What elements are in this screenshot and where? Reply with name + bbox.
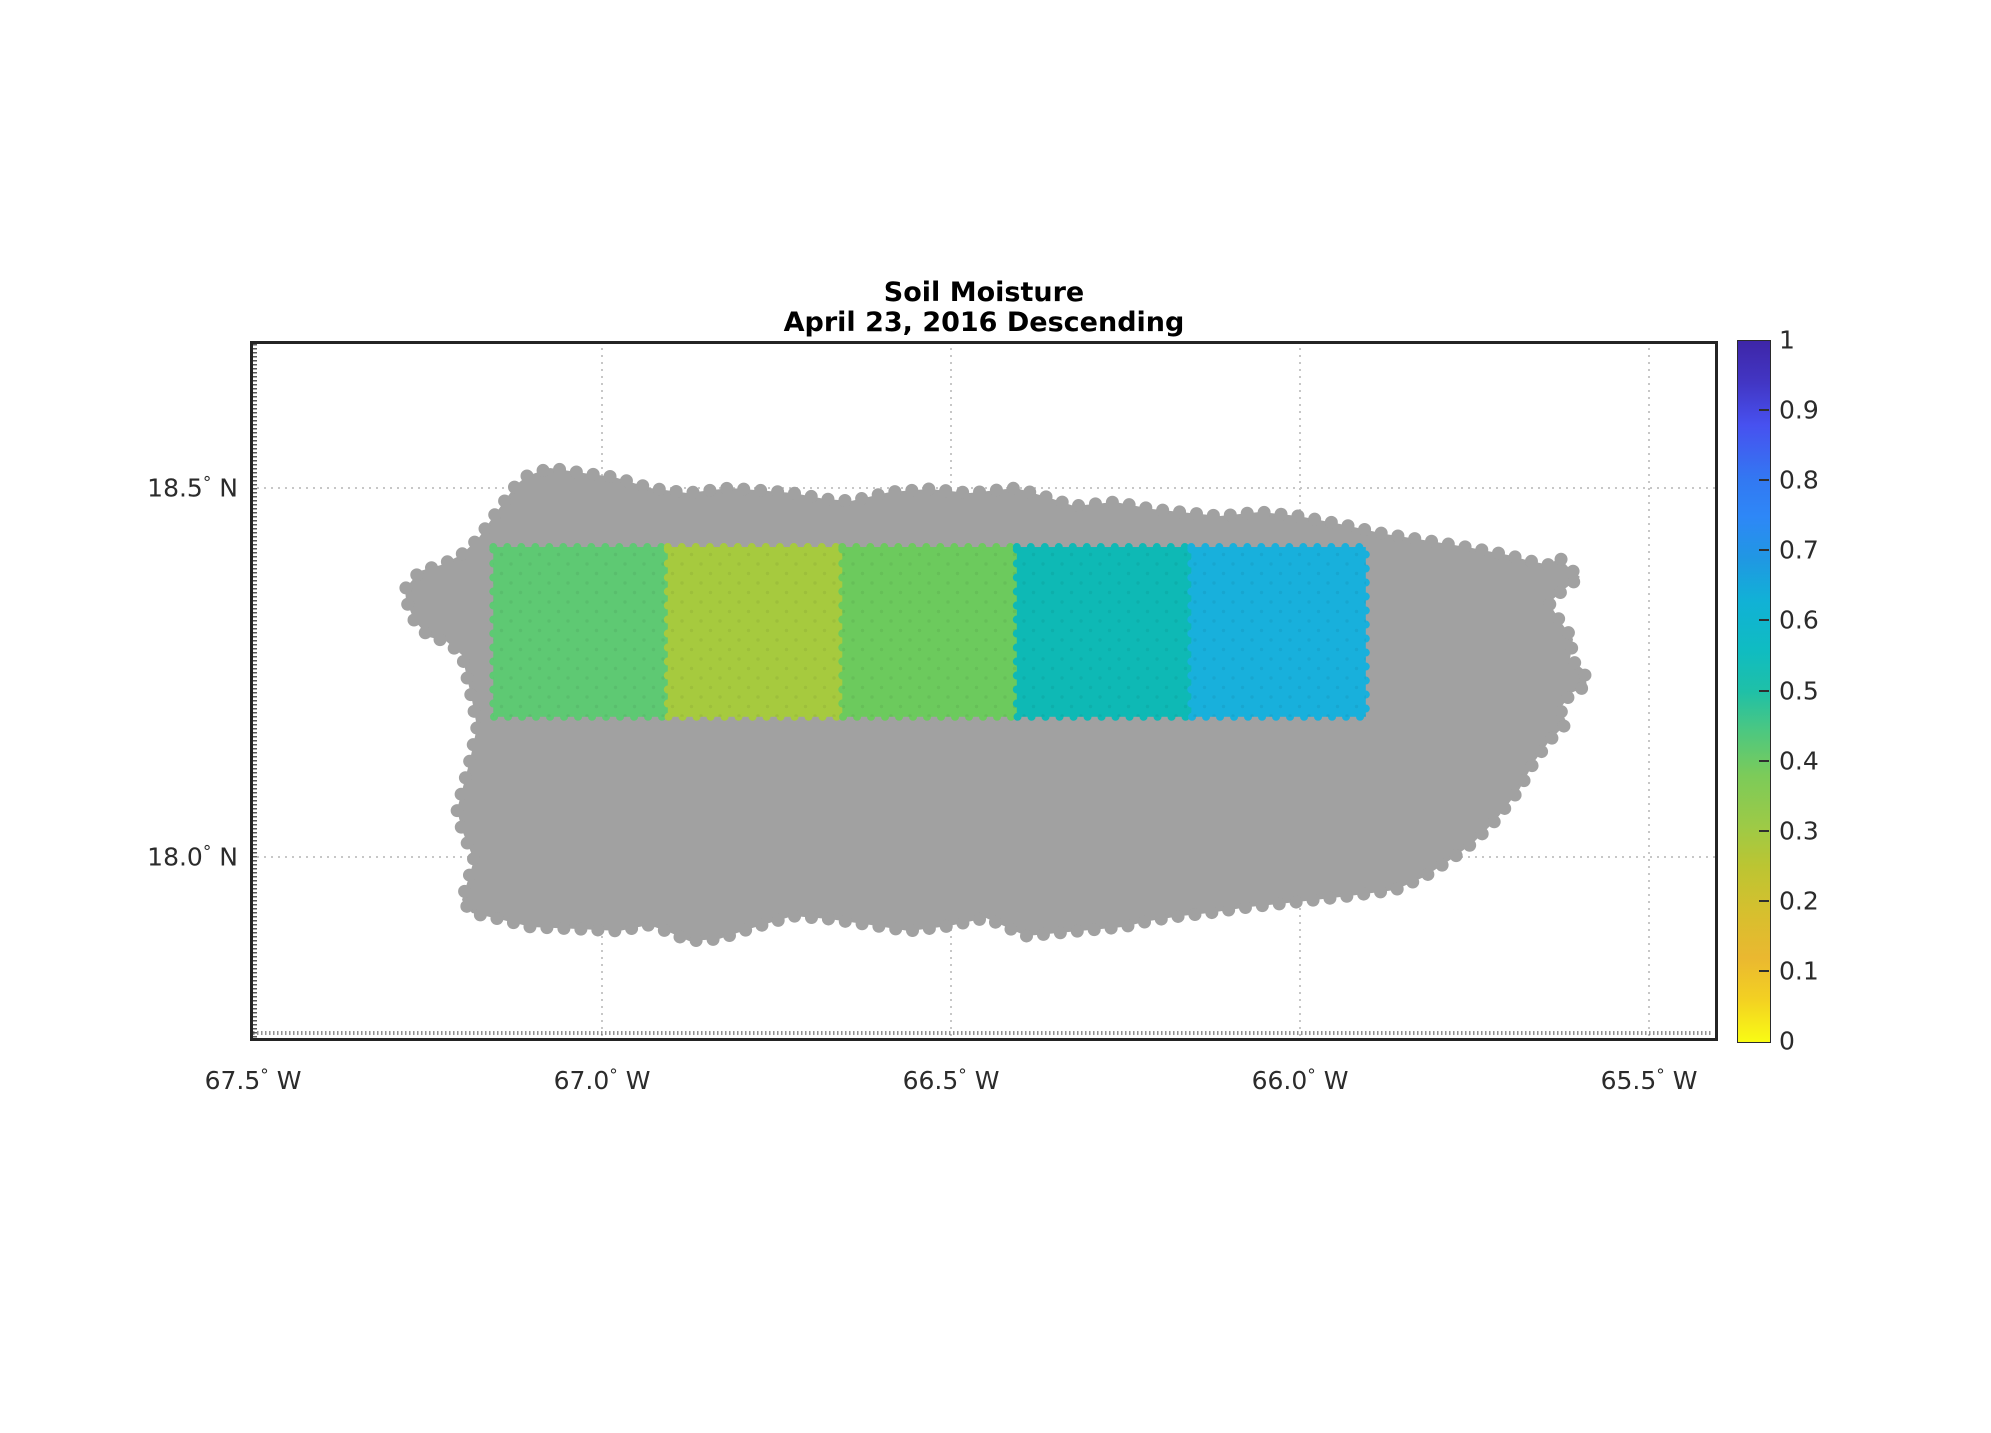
colorbar-label: 0.2 xyxy=(1779,886,1819,915)
colorbar xyxy=(1737,340,1771,1043)
plot-title-line1: Soil Moisture xyxy=(250,278,1718,308)
colorbar-label: 0.1 xyxy=(1779,956,1819,985)
colorbar-tick xyxy=(1759,479,1769,481)
x-tick-label: 65.5° W xyxy=(1601,1066,1698,1095)
left-axis-minor-ticks xyxy=(253,344,257,1038)
colorbar-tick xyxy=(1759,549,1769,551)
plot-title-line2: April 23, 2016 Descending xyxy=(250,308,1718,338)
plot-box-border xyxy=(250,341,1718,1041)
bottom-axis-minor-ticks xyxy=(253,1031,1712,1035)
colorbar-label: 0.9 xyxy=(1779,396,1819,425)
colorbar-label: 0.8 xyxy=(1779,466,1819,495)
x-tick-label: 67.0° W xyxy=(554,1066,651,1095)
y-tick-label: 18.0° N xyxy=(128,843,238,872)
colorbar-tick xyxy=(1759,970,1769,972)
colorbar-tick xyxy=(1759,760,1769,762)
colorbar-label: 0.5 xyxy=(1779,676,1819,705)
colorbar-label: 0.4 xyxy=(1779,746,1819,775)
colorbar-label: 0.3 xyxy=(1779,816,1819,845)
colorbar-label: 0.6 xyxy=(1779,606,1819,635)
x-tick-label: 66.5° W xyxy=(903,1066,1000,1095)
plot-title: Soil Moisture April 23, 2016 Descending xyxy=(250,278,1718,338)
colorbar-tick xyxy=(1759,690,1769,692)
figure-canvas: Soil Moisture April 23, 2016 Descending … xyxy=(0,0,1991,1433)
colorbar-tick xyxy=(1759,900,1769,902)
colorbar-tick xyxy=(1759,830,1769,832)
colorbar-label: 1 xyxy=(1779,326,1795,355)
colorbar-tick xyxy=(1759,619,1769,621)
x-tick-label: 66.0° W xyxy=(1252,1066,1349,1095)
x-tick-label: 67.5° W xyxy=(205,1066,302,1095)
colorbar-label: 0 xyxy=(1779,1027,1795,1056)
colorbar-label: 0.7 xyxy=(1779,536,1819,565)
y-tick-label: 18.5° N xyxy=(128,474,238,503)
colorbar-tick xyxy=(1759,409,1769,411)
